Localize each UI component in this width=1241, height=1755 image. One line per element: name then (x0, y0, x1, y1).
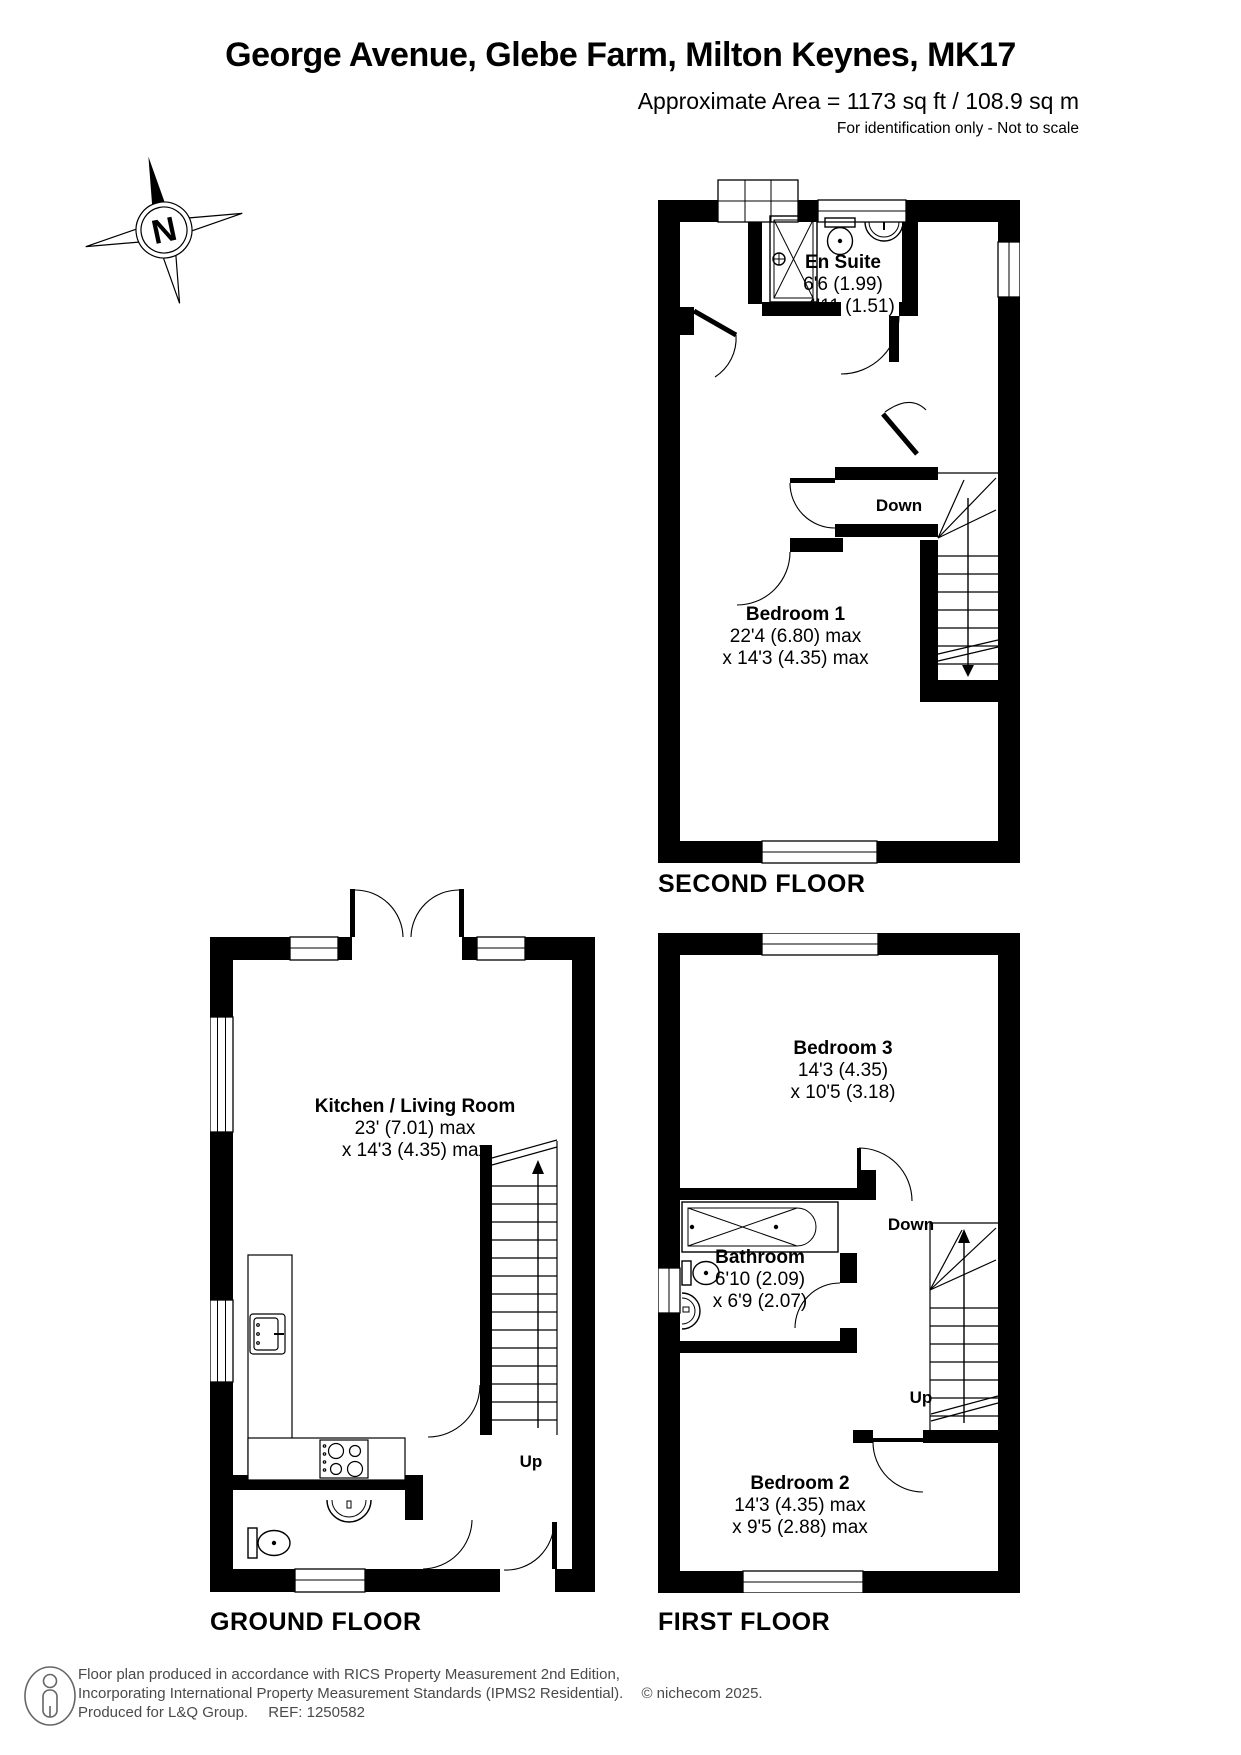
room-dim: 6'10 (2.09) (640, 1269, 880, 1291)
room-name: Bathroom (640, 1247, 880, 1269)
sink-icon (327, 1500, 371, 1522)
stairs-down-label: Down (866, 1215, 956, 1235)
bathtub-icon (682, 1202, 838, 1252)
first-floor-caption: FIRST FLOOR (658, 1608, 830, 1637)
copyright-text: © nichecom 2025. (641, 1685, 762, 1702)
footer-line-3: Produced for L&Q Group. REF: 1250582 (78, 1704, 365, 1721)
toilet-icon (825, 218, 855, 255)
stairs-up-arrow (532, 1160, 544, 1174)
footer-line-1: Floor plan produced in accordance with R… (78, 1666, 620, 1683)
kitchen-counter (248, 1255, 405, 1480)
disclaimer-text: For identification only - Not to scale (837, 120, 1079, 138)
room-label-bedroom-3: Bedroom 3 14'3 (4.35) x 10'5 (3.18) (723, 1038, 963, 1104)
room-dim: x 6'9 (2.07) (640, 1291, 880, 1313)
room-dim: x 9'5 (2.88) max (680, 1517, 920, 1539)
stairs-up-arrow (958, 1229, 970, 1243)
room-label-bathroom: Bathroom 6'10 (2.09) x 6'9 (2.07) (640, 1247, 880, 1313)
stairs-up-label: Up (876, 1388, 966, 1408)
room-dim: x 14'3 (4.35) max (653, 648, 938, 670)
second-floor-caption: SECOND FLOOR (658, 870, 865, 899)
approximate-area: Approximate Area = 1173 sq ft / 108.9 sq… (638, 88, 1079, 115)
room-dim: x 10'5 (3.18) (723, 1082, 963, 1104)
stairs-down-label: Down (854, 496, 944, 516)
footer-line-2-text: Incorporating International Property Mea… (78, 1685, 623, 1702)
room-label-en-suite: En Suite 6'6 (1.99) x 4'11 (1.51) (723, 252, 963, 318)
room-name: Bedroom 3 (723, 1038, 963, 1060)
room-label-bedroom-2: Bedroom 2 14'3 (4.35) max x 9'5 (2.88) m… (680, 1473, 920, 1539)
room-label-kitchen-living-room: Kitchen / Living Room 23' (7.01) max x 1… (250, 1096, 580, 1162)
room-dim: 22'4 (6.80) max (653, 626, 938, 648)
compass-icon: N (76, 130, 256, 310)
ref-number: REF: 1250582 (268, 1704, 365, 1721)
ground-floor-plan (210, 870, 595, 1610)
room-dim: x 14'3 (4.35) max (250, 1140, 580, 1162)
room-name: En Suite (723, 252, 963, 274)
room-label-bedroom-1: Bedroom 1 22'4 (6.80) max x 14'3 (4.35) … (653, 604, 938, 670)
room-dim: 6'6 (1.99) (723, 274, 963, 296)
produced-for-text: Produced for L&Q Group. (78, 1704, 248, 1721)
floorplan-page: George Avenue, Glebe Farm, Milton Keynes… (0, 0, 1241, 1755)
sink-icon (865, 222, 903, 241)
room-dim: 23' (7.01) max (250, 1118, 580, 1140)
toilet-icon (248, 1528, 290, 1558)
ground-floor-stairs (492, 1140, 557, 1435)
room-dim: 14'3 (4.35) (723, 1060, 963, 1082)
room-name: Bedroom 2 (680, 1473, 920, 1495)
person-scale-icon (22, 1662, 78, 1730)
room-dim: 14'3 (4.35) max (680, 1495, 920, 1517)
ground-floor-caption: GROUND FLOOR (210, 1608, 422, 1637)
room-dim: x 4'11 (1.51) (723, 296, 963, 318)
room-name: Bedroom 1 (653, 604, 938, 626)
page-title: George Avenue, Glebe Farm, Milton Keynes… (0, 36, 1241, 75)
footer-line-2: Incorporating International Property Mea… (78, 1685, 763, 1702)
stairs-down-arrow (962, 665, 974, 677)
stairs-up-label: Up (486, 1452, 576, 1472)
room-name: Kitchen / Living Room (250, 1096, 580, 1118)
